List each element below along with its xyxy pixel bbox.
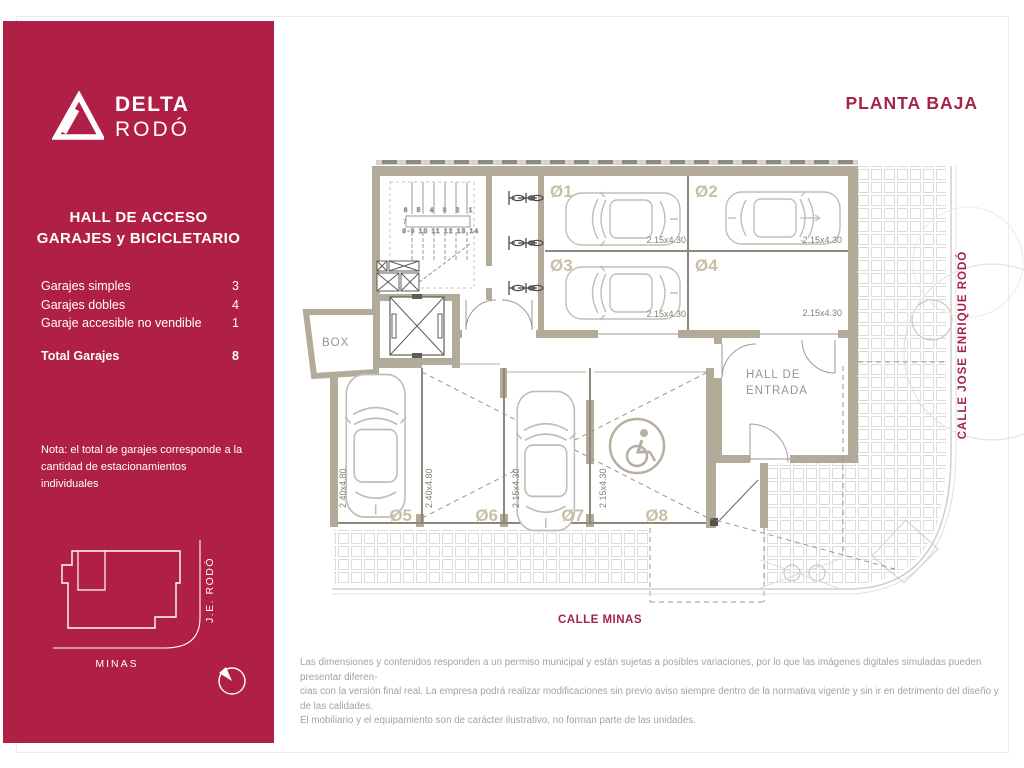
note-line2: cantidad de estacionamientos individuale… bbox=[41, 459, 246, 493]
north-arrow-icon bbox=[219, 667, 245, 694]
street-label-bottom: CALLE MINAS bbox=[558, 614, 642, 626]
stair-numbers-bottom: 8·9 10 11 12 13 14 bbox=[403, 229, 480, 235]
minimap-street-lines bbox=[53, 540, 200, 648]
bike-icon bbox=[509, 281, 543, 295]
brand-line2: RODÓ bbox=[115, 117, 190, 142]
street-label-right: CALLE JOSE ENRIQUE RODÓ bbox=[956, 251, 969, 440]
sidebar-note: Nota: el total de garajes corresponde a … bbox=[41, 442, 246, 493]
bicycle-rack bbox=[509, 191, 543, 295]
sidebar-title: HALL DE ACCESO GARAJES y BICICLETARIO bbox=[3, 207, 274, 249]
wheelchair-icon bbox=[610, 419, 664, 473]
garage-stall-label: Ø7 bbox=[561, 506, 584, 525]
garage-stall-label: Ø1 bbox=[550, 182, 573, 201]
disclaimer-line1: Las dimensiones y contenidos responden a… bbox=[300, 656, 1000, 685]
location-minimap: J.E. RODÓ MINAS bbox=[45, 540, 265, 712]
garage-stall-dim: 2.15x4.30 bbox=[511, 468, 521, 508]
garage-stall-label: Ø4 bbox=[695, 256, 718, 275]
stat-row: Garaje accesible no vendible 1 bbox=[41, 314, 239, 333]
stat-total-row: Total Garajes 8 bbox=[41, 347, 239, 366]
disclaimer-line2: cias con la versión final real. La empre… bbox=[300, 685, 1000, 714]
garage-stall-dim: 2.40x4.80 bbox=[424, 468, 434, 508]
delta-triangle-icon bbox=[52, 91, 104, 143]
stairs: 6 5 4 3 2 1 7 8·9 10 11 12 13 14 bbox=[390, 182, 479, 288]
garage-stall-label: Ø2 bbox=[695, 182, 718, 201]
disclaimer: Las dimensiones y contenidos responden a… bbox=[300, 656, 1000, 729]
vent-shafts bbox=[377, 261, 419, 291]
stat-value: 3 bbox=[232, 277, 239, 296]
elevator bbox=[390, 294, 444, 358]
bike-icon bbox=[509, 191, 543, 205]
total-value: 8 bbox=[232, 347, 239, 366]
stat-value: 1 bbox=[232, 314, 239, 333]
minimap-street-bottom-label: MINAS bbox=[95, 658, 138, 670]
neighbour-wall bbox=[376, 160, 858, 165]
disclaimer-line3: El mobiliario y el equipamiento son de c… bbox=[300, 714, 1000, 729]
garage-stall-dim: 2.40x4.80 bbox=[338, 468, 348, 508]
stat-label: Garaje accesible no vendible bbox=[41, 314, 202, 333]
garage-stall-label: Ø5 bbox=[389, 506, 412, 525]
garage-stall-label: Ø8 bbox=[645, 506, 668, 525]
garage-stall-dim: 2.15x4.30 bbox=[598, 468, 608, 508]
stat-value: 4 bbox=[232, 296, 239, 315]
garage-stall-label: Ø6 bbox=[475, 506, 498, 525]
brochure-page: 6 5 4 3 2 1 7 8·9 10 11 12 13 14 bbox=[0, 0, 1024, 768]
stat-label: Garajes dobles bbox=[41, 296, 125, 315]
stair-numbers-top: 6 5 4 3 2 1 bbox=[404, 208, 476, 214]
garage-stats: Garajes simples 3 Garajes dobles 4 Garaj… bbox=[41, 277, 239, 365]
plan-title: PLANTA BAJA bbox=[845, 93, 978, 113]
sidebar-title-line1: HALL DE ACCESO bbox=[3, 207, 274, 228]
slab-edges bbox=[422, 364, 706, 372]
brand-name: DELTA RODÓ bbox=[115, 92, 190, 142]
garage-stall-dim: 2.15x4.30 bbox=[646, 235, 686, 245]
car-icon bbox=[345, 375, 406, 518]
stat-row: Garajes simples 3 bbox=[41, 277, 239, 296]
garage-stall-dim: 2.15x4.30 bbox=[802, 235, 842, 245]
sidebar-title-line2: GARAJES y BICICLETARIO bbox=[3, 228, 274, 249]
driveway bbox=[650, 528, 764, 602]
garage-stall-dim: 2.15x4.30 bbox=[802, 308, 842, 318]
stat-label: Garajes simples bbox=[41, 277, 131, 296]
hall-label-line2: ENTRADA bbox=[746, 385, 808, 397]
brand-logo: DELTA RODÓ bbox=[52, 91, 190, 143]
box-label: BOX bbox=[322, 337, 349, 349]
hall-label-line1: HALL DE bbox=[746, 369, 801, 381]
note-line1: Nota: el total de garajes corresponde a … bbox=[41, 442, 246, 459]
sidebar: DELTA RODÓ HALL DE ACCESO GARAJES y BICI… bbox=[3, 21, 274, 743]
garage-stall-dim: 2.15x4.30 bbox=[646, 309, 686, 319]
minimap-street-right-label: J.E. RODÓ bbox=[203, 557, 216, 623]
brand-line1: DELTA bbox=[115, 92, 190, 117]
bike-icon bbox=[509, 236, 543, 250]
stat-row: Garajes dobles 4 bbox=[41, 296, 239, 315]
garage-stall-label: Ø3 bbox=[550, 256, 573, 275]
minimap-building-notch bbox=[78, 551, 105, 590]
total-label: Total Garajes bbox=[41, 347, 119, 366]
